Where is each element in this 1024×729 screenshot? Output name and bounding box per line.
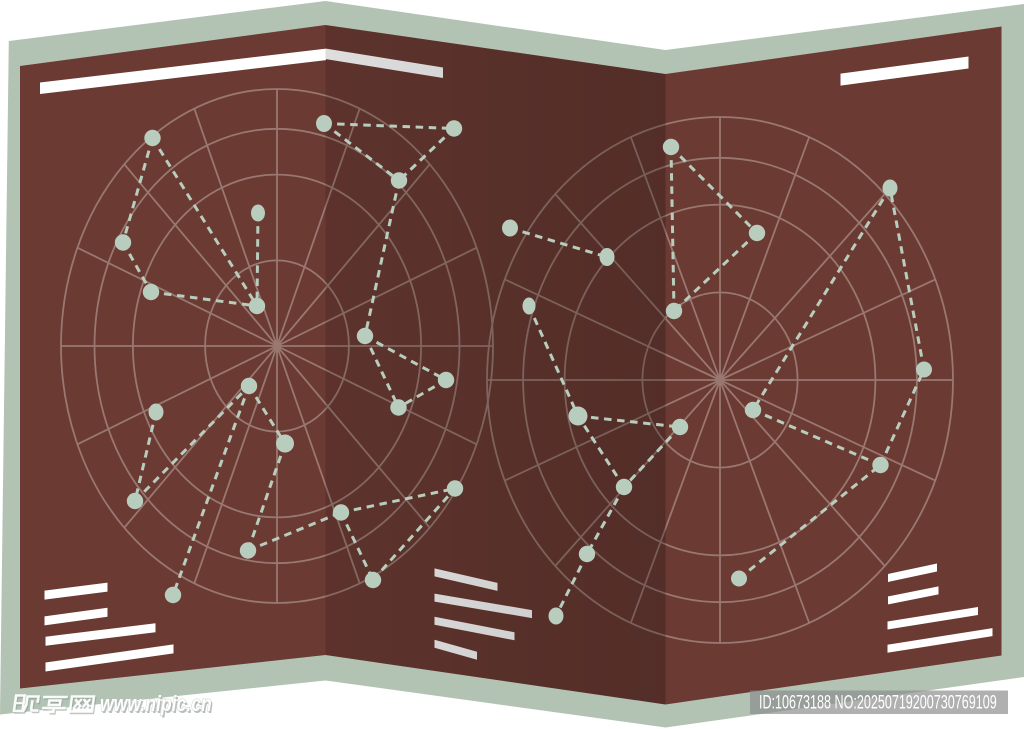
svg-text:www.nipic.cn: www.nipic.cn	[100, 692, 212, 716]
svg-text:ID:10673188 NO:202507192007307: ID:10673188 NO:20250719200730769109	[759, 692, 997, 713]
